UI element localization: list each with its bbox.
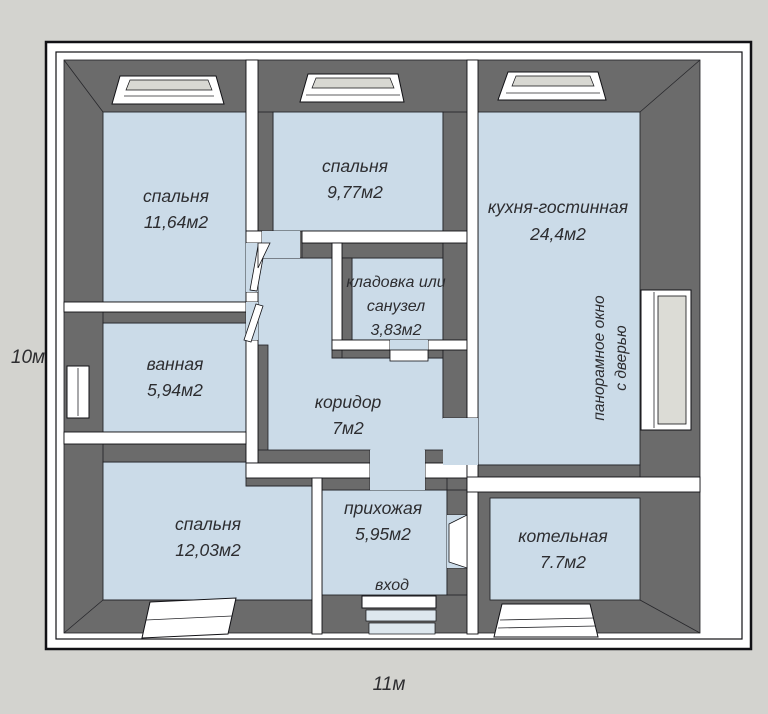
wall-face-corridor-top <box>302 243 443 258</box>
door-opening-hallway <box>370 450 425 490</box>
wall-corridor-bottom-b <box>425 463 467 478</box>
wall-corridor-left-lower <box>246 340 258 463</box>
label-hallway-area: 5,95м2 <box>355 524 411 544</box>
wall-face-hallway-top-a <box>322 478 370 490</box>
label-kitchen-name: кухня-гостинная <box>488 197 628 217</box>
room-floor-boiler-room <box>490 498 640 600</box>
wall-corridor-top-b <box>302 231 467 243</box>
door-leaf-boiler-room <box>449 515 467 568</box>
dimension-width-label: 11м <box>373 674 406 695</box>
wall-boiler-top <box>467 477 700 492</box>
wall-corridor-left-upper <box>246 292 258 302</box>
wall-corridor-top-a <box>246 231 262 243</box>
wall-face-hallway-right-b <box>447 568 467 595</box>
room-floor-bathroom <box>103 323 246 432</box>
room-floor-kitchen-living <box>478 112 640 465</box>
wall-storage-left <box>332 243 342 350</box>
label-boiler-room-name: котельная <box>518 526 608 546</box>
label-bedroom-top-left-area: 11,64м2 <box>144 212 208 232</box>
wall-storage-bottom-b <box>428 340 467 350</box>
label-bedroom-top-middle-name: спальня <box>322 156 388 176</box>
label-storage-area: 3,83м2 <box>370 322 421 339</box>
floor-plan-svg: спальня 11,64м2 спальня 9,77м2 кухня-гос… <box>0 0 768 714</box>
wall-bathroom-bottom <box>64 432 246 444</box>
label-bedroom-top-middle-area: 9,77м2 <box>327 182 383 202</box>
label-storage-name-line1: кладовка или <box>346 274 445 291</box>
window-boiler-room-icon <box>494 604 598 637</box>
passage-corridor-kitchen <box>443 418 478 465</box>
window-bathroom-icon <box>67 366 89 418</box>
door-leaf-storage <box>390 350 428 361</box>
label-corridor-area: 7м2 <box>332 418 364 438</box>
label-storage-name-line2: санузел <box>367 298 425 315</box>
wall-face-hallway-top-b <box>425 478 447 490</box>
label-panoramic-window-line1: панорамное окно <box>591 295 608 421</box>
entrance-steps-icon <box>362 596 436 634</box>
floor-plan: спальня 11,64м2 спальня 9,77м2 кухня-гос… <box>0 0 768 714</box>
label-bathroom-name: ванная <box>147 354 204 374</box>
label-bedroom-bottom-left-area: 12,03м2 <box>175 540 241 560</box>
wall-face-bedrooms-divider <box>258 112 273 231</box>
label-kitchen-area: 24,4м2 <box>529 224 586 244</box>
label-hallway-name: прихожая <box>344 498 422 518</box>
wall-face-storage-bottom-b <box>428 350 443 358</box>
wall-face-corridor-left <box>258 345 268 463</box>
wall-bedrooms-divider <box>246 60 258 231</box>
window-bedroom-top-middle-icon <box>300 74 404 102</box>
label-bathroom-area: 5,94м2 <box>147 380 203 400</box>
dimension-height-label: 10м <box>11 347 45 368</box>
wall-face-storage-bottom-a <box>342 350 390 358</box>
wall-face-corridor-bottom-a <box>258 450 370 463</box>
label-entrance: вход <box>375 577 409 594</box>
label-boiler-room-area: 7.7м2 <box>540 552 586 572</box>
wall-hallway-left <box>312 478 322 634</box>
panoramic-window-icon <box>641 290 691 430</box>
window-bedroom-bottom-left-icon <box>142 598 236 638</box>
wall-storage-bottom-a <box>332 340 390 350</box>
wall-face-boiler-top <box>478 465 640 477</box>
wall-face-hallway-right-a <box>447 490 467 515</box>
label-panoramic-window-line2: с дверью <box>613 325 630 391</box>
wall-kitchen-left <box>467 60 478 418</box>
label-corridor-name: коридор <box>315 392 382 412</box>
label-bedroom-top-left-name: спальня <box>143 186 209 206</box>
wall-face-kitchen-left <box>443 112 467 418</box>
label-bedroom-bottom-left-name: спальня <box>175 514 241 534</box>
wall-face-bathroom-top <box>103 312 246 323</box>
window-bedroom-top-left-icon <box>112 76 224 104</box>
wall-face-storage-left <box>342 258 352 340</box>
wall-face-bathroom-bottom <box>103 444 246 462</box>
room-floor-bedroom-top-left <box>103 112 246 302</box>
wall-corridor-bottom-a <box>246 463 370 478</box>
window-kitchen-icon <box>498 72 606 100</box>
wall-bathroom-top <box>64 302 246 312</box>
